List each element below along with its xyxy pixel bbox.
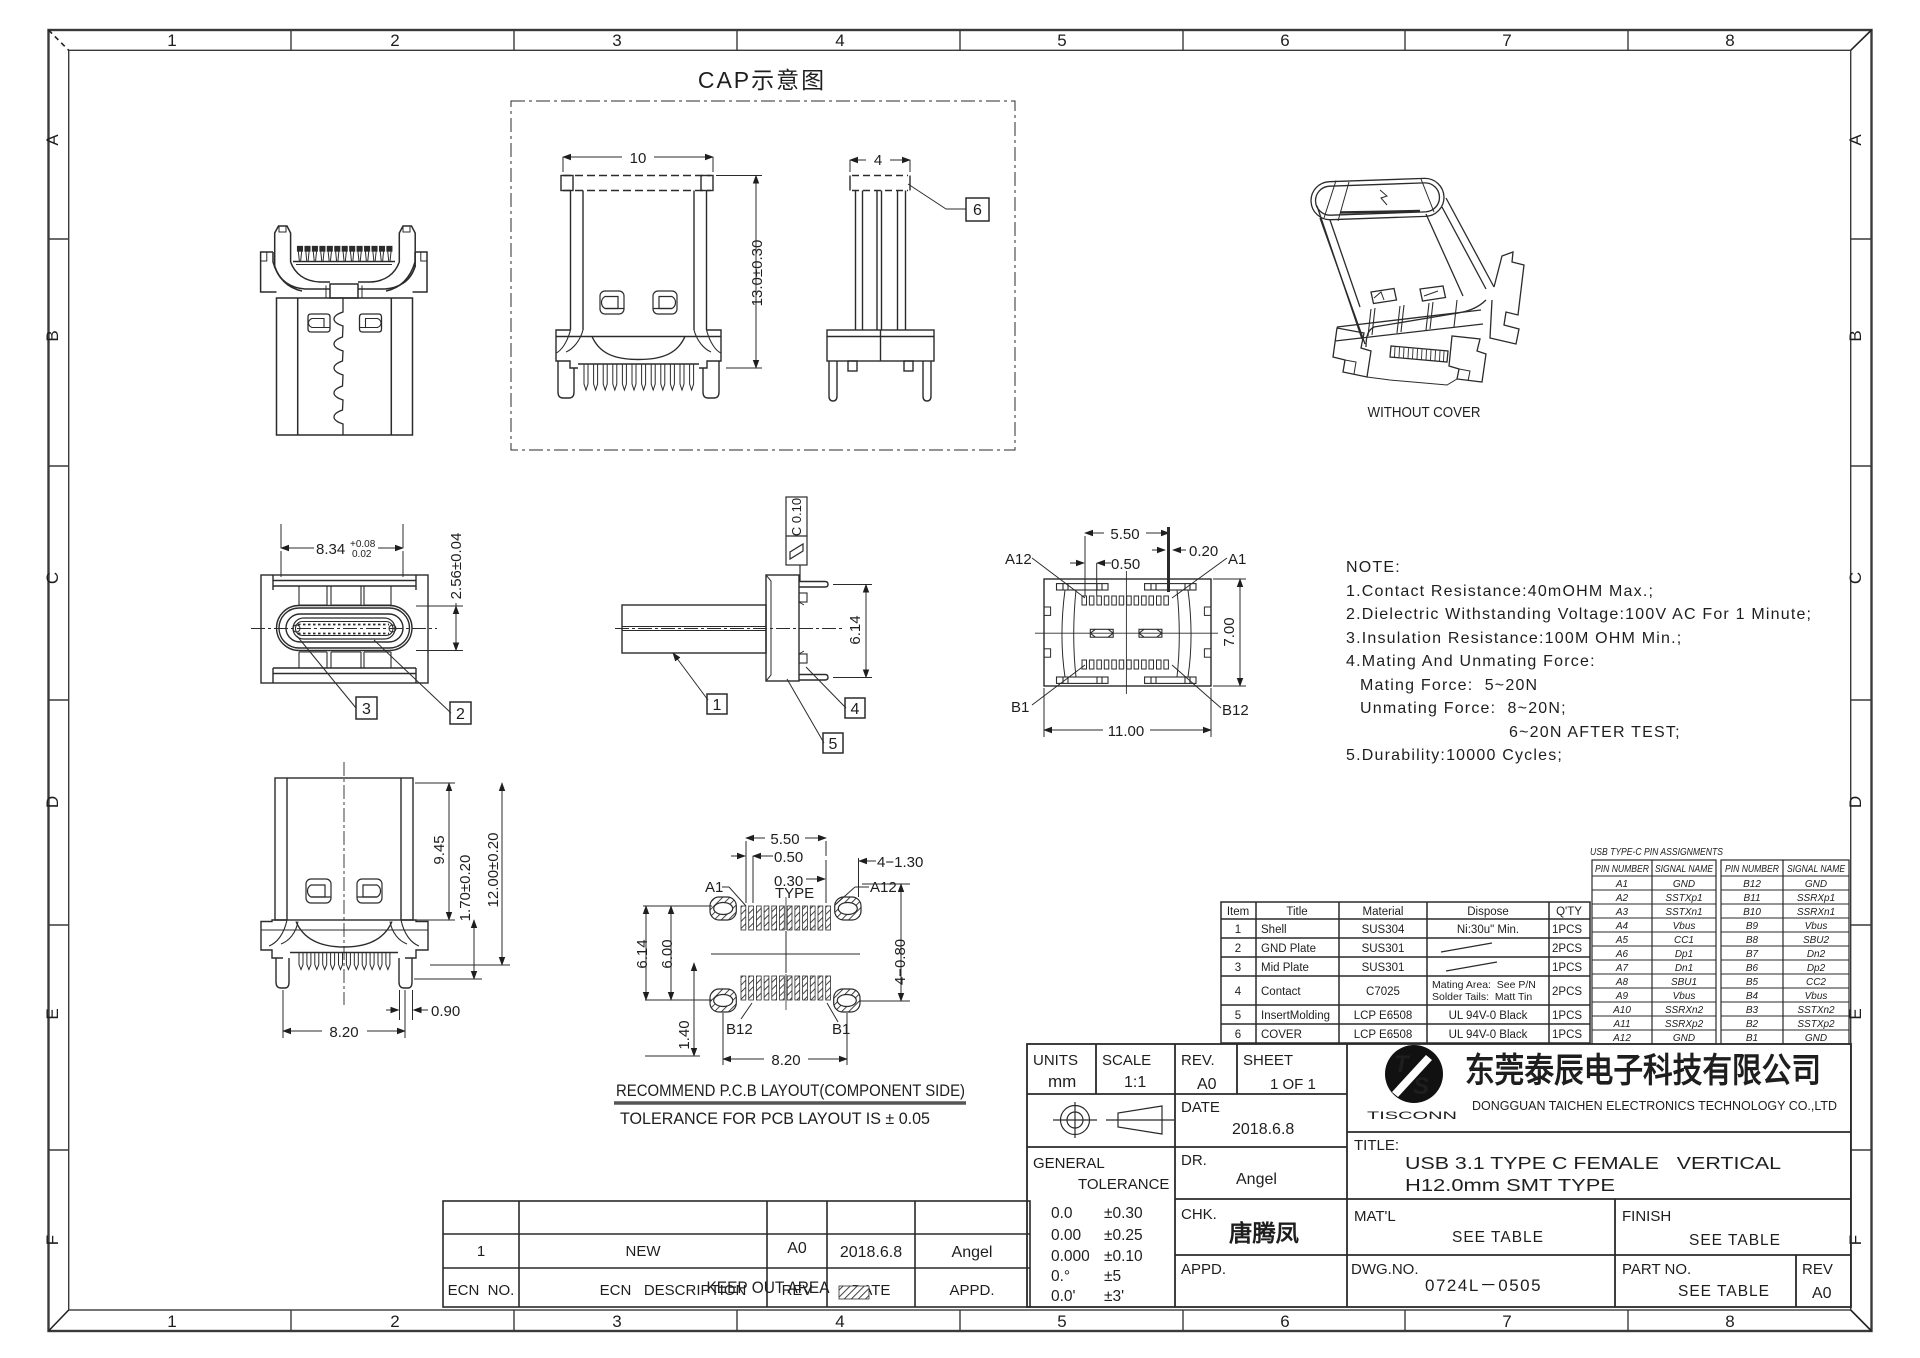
svg-text:7.00: 7.00: [1221, 617, 1238, 646]
svg-text:DWG.NO.: DWG.NO.: [1351, 1261, 1419, 1278]
svg-text:A12: A12: [1005, 551, 1032, 568]
svg-text:A2: A2: [1615, 893, 1629, 904]
svg-text:0724L－0505: 0724L－0505: [1425, 1276, 1542, 1295]
svg-text:4: 4: [851, 701, 860, 718]
svg-text:Title: Title: [1286, 906, 1307, 918]
svg-text:USB TYPE-C PIN ASSIGNMENTS: USB TYPE-C PIN ASSIGNMENTS: [1590, 846, 1723, 858]
svg-text:A1: A1: [1228, 551, 1246, 568]
svg-text:Vbus: Vbus: [1805, 991, 1828, 1002]
svg-text:DR.: DR.: [1181, 1152, 1207, 1169]
svg-text:A10: A10: [1612, 1005, 1631, 1016]
svg-text:2PCS: 2PCS: [1552, 943, 1582, 955]
svg-text:B1: B1: [1746, 1033, 1758, 1044]
svg-text:±0.30: ±0.30: [1104, 1205, 1143, 1222]
svg-text:3: 3: [612, 1312, 621, 1331]
svg-text:A1: A1: [1615, 879, 1628, 890]
svg-text:Material: Material: [1363, 906, 1404, 918]
svg-text:6: 6: [1280, 1312, 1289, 1331]
svg-text:1.40: 1.40: [676, 1020, 693, 1049]
svg-text:4: 4: [835, 31, 844, 50]
svg-text:C: C: [43, 572, 62, 584]
svg-text:2.56±0.04: 2.56±0.04: [448, 533, 465, 600]
svg-text:SEE TABLE: SEE TABLE: [1452, 1229, 1544, 1246]
svg-text:D: D: [1846, 796, 1865, 808]
svg-text:SIGNAL NAME: SIGNAL NAME: [1655, 864, 1713, 875]
svg-text:Q'TY: Q'TY: [1556, 906, 1582, 918]
svg-text:B5: B5: [1746, 977, 1759, 988]
svg-text:2: 2: [390, 31, 399, 50]
svg-text:InsertMolding: InsertMolding: [1261, 1010, 1330, 1022]
svg-text:LCP E6508: LCP E6508: [1354, 1010, 1413, 1022]
svg-text:B12: B12: [726, 1021, 753, 1038]
svg-text:Dp1: Dp1: [1675, 949, 1693, 960]
svg-text:SIGNAL NAME: SIGNAL NAME: [1787, 864, 1845, 875]
svg-text:RECOMMEND P.C.B LAYOUT(COMPONE: RECOMMEND P.C.B LAYOUT(COMPONENT SIDE): [616, 1082, 965, 1100]
svg-text:SSTXp2: SSTXp2: [1797, 1019, 1835, 1030]
svg-text:0.90: 0.90: [431, 1003, 460, 1020]
svg-text:GND: GND: [1805, 879, 1827, 890]
svg-text:B11: B11: [1743, 893, 1760, 904]
svg-text:A0: A0: [1197, 1076, 1217, 1093]
svg-text:B4: B4: [1746, 991, 1759, 1002]
svg-text:11.00: 11.00: [1108, 723, 1144, 740]
svg-text:6: 6: [973, 202, 982, 219]
svg-text:Dispose: Dispose: [1467, 906, 1509, 918]
svg-text:0.50: 0.50: [774, 849, 803, 866]
svg-text:GND: GND: [1805, 1033, 1827, 1044]
svg-text:TOLERANCE: TOLERANCE: [1078, 1176, 1169, 1193]
svg-text:Vbus: Vbus: [1805, 921, 1828, 932]
svg-text:Mating Force: 5~20N: Mating Force: 5~20N: [1360, 677, 1538, 694]
svg-text:6: 6: [1235, 1029, 1241, 1041]
svg-text:PART NO.: PART NO.: [1622, 1261, 1691, 1278]
svg-text:1.70±0.20: 1.70±0.20: [457, 855, 474, 922]
svg-text:Vbus: Vbus: [1673, 921, 1696, 932]
svg-text:APPD.: APPD.: [949, 1282, 994, 1299]
svg-text:Angel: Angel: [1236, 1171, 1277, 1188]
svg-text:3: 3: [1235, 962, 1241, 974]
svg-text:5: 5: [829, 736, 838, 753]
svg-text:0.000: 0.000: [1051, 1248, 1090, 1265]
svg-text:SBU1: SBU1: [1671, 977, 1697, 988]
svg-text:CC1: CC1: [1674, 935, 1694, 946]
svg-text:6.00: 6.00: [659, 939, 676, 968]
svg-text:E: E: [43, 1008, 62, 1019]
svg-text:1: 1: [1235, 924, 1241, 936]
svg-text:CAP示意图: CAP示意图: [698, 67, 826, 93]
svg-text:±0.25: ±0.25: [1104, 1227, 1143, 1244]
svg-text:SSTXp1: SSTXp1: [1665, 893, 1702, 904]
svg-text:FINISH: FINISH: [1622, 1208, 1671, 1225]
svg-text:A7: A7: [1615, 963, 1629, 974]
svg-text:2PCS: 2PCS: [1552, 986, 1582, 998]
svg-text:SBU2: SBU2: [1803, 935, 1830, 946]
svg-text:9.45: 9.45: [431, 835, 448, 864]
svg-text:F: F: [1846, 1235, 1865, 1245]
svg-text:13.0±0.30: 13.0±0.30: [749, 240, 766, 307]
svg-text:A11: A11: [1612, 1019, 1630, 1030]
svg-text:B10: B10: [1743, 907, 1761, 918]
svg-text:B6: B6: [1746, 963, 1759, 974]
svg-text:SUS301: SUS301: [1362, 962, 1405, 974]
svg-text:COVER: COVER: [1261, 1029, 1302, 1041]
svg-text:0.20: 0.20: [1189, 543, 1218, 560]
svg-text:2: 2: [456, 706, 465, 723]
svg-text:A: A: [43, 134, 62, 146]
svg-text:A4: A4: [1615, 921, 1629, 932]
svg-text:1PCS: 1PCS: [1552, 924, 1582, 936]
svg-text:SEE TABLE: SEE TABLE: [1689, 1232, 1781, 1249]
svg-text:CC2: CC2: [1806, 977, 1826, 988]
svg-text:5.50: 5.50: [1110, 526, 1139, 543]
svg-text:APPD.: APPD.: [1181, 1261, 1226, 1278]
svg-text:C7025: C7025: [1366, 986, 1400, 998]
svg-text:SUS301: SUS301: [1362, 943, 1405, 955]
svg-text:A5: A5: [1615, 935, 1629, 946]
svg-text:Unmating Force: 8~20N;: Unmating Force: 8~20N;: [1360, 700, 1567, 717]
svg-text:1.Contact Resistance:40mOHM Ma: 1.Contact Resistance:40mOHM Max.;: [1346, 583, 1654, 600]
svg-text:A3: A3: [1615, 907, 1629, 918]
svg-text:0.02: 0.02: [352, 549, 372, 560]
svg-text:C: C: [1846, 572, 1865, 584]
svg-text:DONGGUAN TAICHEN ELECTRONICS T: DONGGUAN TAICHEN ELECTRONICS TECHNOLOGY …: [1472, 1098, 1837, 1113]
svg-text:NEW: NEW: [626, 1243, 662, 1260]
svg-text:2: 2: [390, 1312, 399, 1331]
svg-text:12.00±0.20: 12.00±0.20: [485, 833, 502, 908]
svg-text:TYPE: TYPE: [775, 885, 814, 902]
svg-text:1PCS: 1PCS: [1552, 1010, 1582, 1022]
svg-text:SSRXn2: SSRXn2: [1665, 1005, 1704, 1016]
svg-text:SSTXn2: SSTXn2: [1797, 1005, 1835, 1016]
svg-text:ECN NO.: ECN NO.: [448, 1282, 515, 1299]
svg-text:SSTXn1: SSTXn1: [1665, 907, 1702, 918]
svg-text:B: B: [43, 330, 62, 341]
svg-text:WITHOUT COVER: WITHOUT COVER: [1368, 404, 1481, 421]
svg-text:Solder Tails: Matt Tin: Solder Tails: Matt Tin: [1432, 991, 1532, 1003]
svg-text:GND: GND: [1673, 1033, 1695, 1044]
svg-text:TITLE:: TITLE:: [1354, 1137, 1399, 1154]
svg-text:LCP E6508: LCP E6508: [1354, 1029, 1413, 1041]
svg-text:1:1: 1:1: [1124, 1074, 1146, 1091]
svg-text:GND Plate: GND Plate: [1261, 943, 1316, 955]
svg-text:Item: Item: [1227, 906, 1249, 918]
svg-text:Ni:30u" Min.: Ni:30u" Min.: [1457, 924, 1519, 936]
svg-text:B12: B12: [1222, 702, 1249, 719]
svg-text:B9: B9: [1746, 921, 1759, 932]
svg-text:SSRXn1: SSRXn1: [1797, 907, 1835, 918]
svg-text:UL 94V-0 Black: UL 94V-0 Black: [1449, 1010, 1528, 1022]
svg-text:A8: A8: [1615, 977, 1629, 988]
svg-text:H12.0mm SMT TYPE: H12.0mm SMT TYPE: [1405, 1175, 1615, 1195]
svg-text:PIN NUMBER: PIN NUMBER: [1595, 864, 1649, 875]
svg-text:5.50: 5.50: [770, 831, 799, 848]
svg-text:SEE TABLE: SEE TABLE: [1678, 1283, 1770, 1300]
svg-text:B: B: [1846, 330, 1865, 341]
svg-text:1PCS: 1PCS: [1552, 962, 1582, 974]
svg-text:USB 3.1 TYPE C FEMALE VERTIC: USB 3.1 TYPE C FEMALE VERTICAL: [1405, 1153, 1781, 1173]
svg-text:6~20N AFTER TEST;: 6~20N AFTER TEST;: [1509, 724, 1681, 741]
svg-text:NOTE:: NOTE:: [1346, 559, 1401, 576]
svg-text:A6: A6: [1615, 949, 1629, 960]
svg-text:C 0.10: C 0.10: [789, 498, 804, 536]
svg-text:2018.6.8: 2018.6.8: [1232, 1121, 1294, 1138]
svg-text:A1: A1: [705, 879, 723, 896]
svg-text:0.°: 0.°: [1051, 1268, 1070, 1285]
svg-text:6: 6: [1280, 31, 1289, 50]
svg-text:T: T: [1394, 1051, 1411, 1078]
svg-text:A9: A9: [1615, 991, 1629, 1002]
svg-text:GENERAL: GENERAL: [1033, 1155, 1105, 1172]
svg-text:A: A: [1846, 134, 1865, 146]
svg-text:SSRXp2: SSRXp2: [1665, 1019, 1704, 1030]
svg-text:Dn2: Dn2: [1807, 949, 1826, 960]
svg-text:TISCONN: TISCONN: [1367, 1110, 1457, 1122]
svg-text:3: 3: [612, 31, 621, 50]
svg-text:0.0': 0.0': [1051, 1288, 1076, 1305]
svg-text:Mid Plate: Mid Plate: [1261, 962, 1309, 974]
svg-text:0.00: 0.00: [1051, 1227, 1082, 1244]
svg-text:1: 1: [167, 1312, 176, 1331]
svg-text:B8: B8: [1746, 935, 1759, 946]
svg-text:B1: B1: [832, 1021, 850, 1038]
svg-text:SSRXp1: SSRXp1: [1797, 893, 1835, 904]
svg-text:B12: B12: [1743, 879, 1761, 890]
svg-text:5: 5: [1057, 31, 1066, 50]
svg-text:3: 3: [362, 701, 371, 718]
svg-text:1 OF 1: 1 OF 1: [1270, 1076, 1316, 1093]
svg-text:5: 5: [1057, 1312, 1066, 1331]
svg-text:REV.: REV.: [1181, 1052, 1215, 1069]
svg-text:SCALE: SCALE: [1102, 1052, 1151, 1069]
svg-text:UNITS: UNITS: [1033, 1052, 1078, 1069]
svg-text:mm: mm: [1048, 1072, 1076, 1091]
svg-text:1PCS: 1PCS: [1552, 1029, 1582, 1041]
svg-text:4−1.30: 4−1.30: [877, 854, 923, 871]
svg-text:Dn1: Dn1: [1675, 963, 1693, 974]
svg-text:1: 1: [477, 1243, 485, 1260]
svg-text:7: 7: [1502, 31, 1511, 50]
svg-text:SHEET: SHEET: [1243, 1052, 1293, 1069]
svg-text:Contact: Contact: [1261, 986, 1301, 998]
svg-text:TOLERANCE FOR PCB LAYOUT IS ±: TOLERANCE FOR PCB LAYOUT IS ± 0.05: [620, 1110, 930, 1128]
svg-text:1: 1: [713, 697, 722, 714]
svg-text:10: 10: [630, 150, 647, 167]
svg-text:MAT'L: MAT'L: [1354, 1208, 1396, 1225]
svg-text:2: 2: [1235, 943, 1241, 955]
svg-text:SUS304: SUS304: [1362, 924, 1405, 936]
svg-text:8: 8: [1725, 31, 1734, 50]
svg-text:Angel: Angel: [952, 1244, 993, 1261]
svg-text:4: 4: [874, 152, 882, 169]
svg-text:±3': ±3': [1104, 1288, 1124, 1305]
svg-text:±0.10: ±0.10: [1104, 1248, 1143, 1265]
svg-text:5.Durability:10000 Cycles;: 5.Durability:10000 Cycles;: [1346, 747, 1563, 764]
svg-text:B1: B1: [1011, 699, 1029, 716]
svg-text:8.20: 8.20: [771, 1052, 800, 1069]
svg-text:2018.6.8: 2018.6.8: [840, 1244, 902, 1261]
svg-text:4.Mating And Unmating Force:: 4.Mating And Unmating Force:: [1346, 653, 1596, 670]
svg-text:A12: A12: [1612, 1033, 1631, 1044]
svg-text:CHK.: CHK.: [1181, 1206, 1217, 1223]
svg-text:REV: REV: [1802, 1261, 1833, 1278]
svg-text:A12: A12: [870, 879, 897, 896]
svg-text:Mating Area: See P/N: Mating Area: See P/N: [1432, 979, 1536, 991]
svg-text:A0: A0: [1812, 1285, 1832, 1302]
svg-text:B3: B3: [1746, 1005, 1759, 1016]
svg-text:B7: B7: [1746, 949, 1759, 960]
svg-text:0.0: 0.0: [1051, 1205, 1073, 1222]
svg-text:±5: ±5: [1104, 1268, 1121, 1285]
svg-text:0.50: 0.50: [1111, 556, 1140, 573]
svg-text:DATE: DATE: [1181, 1099, 1220, 1116]
svg-text:8: 8: [1725, 1312, 1734, 1331]
svg-text:GND: GND: [1673, 879, 1695, 890]
svg-text:4: 4: [1235, 986, 1242, 998]
svg-text:7: 7: [1502, 1312, 1511, 1331]
svg-text:5: 5: [1235, 1010, 1241, 1022]
svg-text:东莞泰辰电子科技有限公司: 东莞泰辰电子科技有限公司: [1465, 1051, 1821, 1090]
svg-text:8.34: 8.34: [316, 541, 345, 558]
svg-text:3.Insulation Resistance:100M O: 3.Insulation Resistance:100M OHM Min.;: [1346, 630, 1682, 647]
svg-text:Vbus: Vbus: [1673, 991, 1696, 1002]
svg-text:Shell: Shell: [1261, 924, 1287, 936]
svg-text:D: D: [43, 796, 62, 808]
svg-text:B2: B2: [1746, 1019, 1759, 1030]
svg-text:S: S: [1413, 1073, 1429, 1100]
svg-text:6.14: 6.14: [847, 615, 864, 644]
svg-text:2.Dielectric Withstanding Volt: 2.Dielectric Withstanding Voltage:100V A…: [1346, 606, 1812, 623]
svg-text:6.14: 6.14: [634, 939, 651, 968]
svg-text:4−0.80: 4−0.80: [892, 939, 909, 985]
svg-text:PIN NUMBER: PIN NUMBER: [1725, 864, 1779, 875]
svg-text:Dp2: Dp2: [1807, 963, 1826, 974]
svg-text:F: F: [43, 1235, 62, 1245]
svg-text:4: 4: [835, 1312, 844, 1331]
svg-text:A0: A0: [787, 1240, 807, 1257]
svg-text:1: 1: [167, 31, 176, 50]
svg-text:唐腾凤: 唐腾凤: [1229, 1220, 1299, 1246]
svg-text:8.20: 8.20: [329, 1024, 358, 1041]
svg-text:KEEP OUT AREA: KEEP OUT AREA: [707, 1278, 831, 1297]
svg-text:UL 94V-0 Black: UL 94V-0 Black: [1449, 1029, 1528, 1041]
